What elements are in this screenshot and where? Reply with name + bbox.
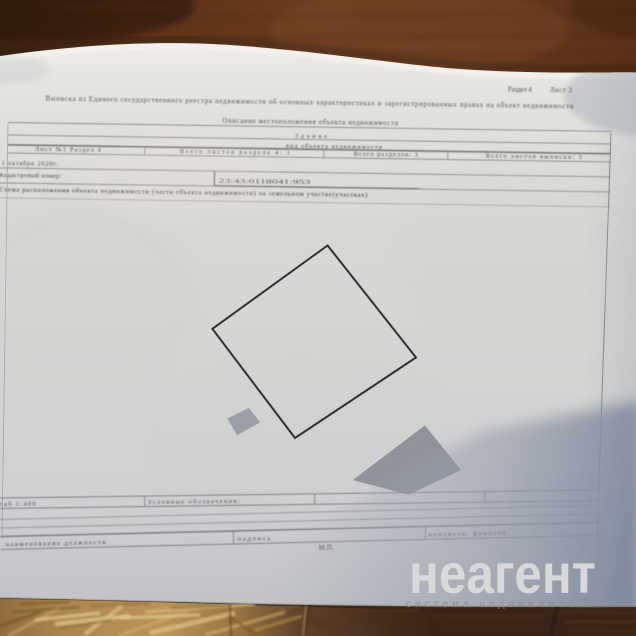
svg-text:Всего разделов: 3: Всего разделов: 3 bbox=[354, 151, 418, 159]
svg-text:Лист 3: Лист 3 bbox=[550, 86, 573, 94]
svg-text:Раздел 4: Раздел 4 bbox=[508, 86, 533, 94]
svg-text:неагент: неагент bbox=[409, 542, 596, 605]
svg-text:таб 1:400: таб 1:400 bbox=[0, 501, 36, 508]
svg-text:Условные обозначения:: Условные обозначения: bbox=[148, 498, 240, 506]
svg-text:Кадастровый номер:: Кадастровый номер: bbox=[0, 172, 62, 180]
svg-text:Лист №1 Раздел 4: Лист №1 Раздел 4 bbox=[35, 146, 102, 154]
svg-text:подпись: подпись bbox=[237, 535, 270, 543]
svg-text:1 октября 2020г.: 1 октября 2020г. bbox=[2, 160, 58, 168]
svg-text:система недвижимости: система недвижимости bbox=[406, 598, 592, 610]
